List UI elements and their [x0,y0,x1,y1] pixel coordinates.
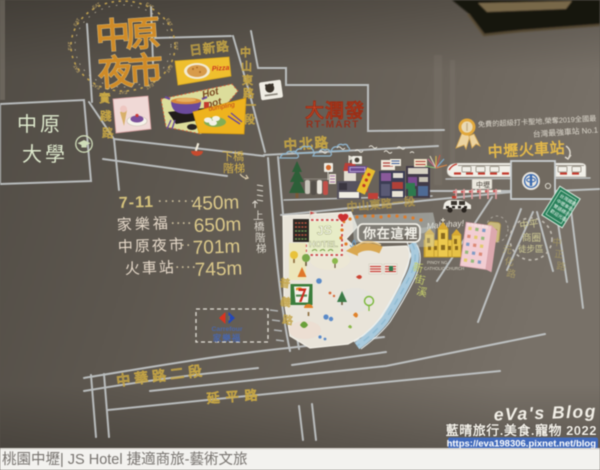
svg-text:中: 中 [552,236,563,249]
svg-text:･････: ･････ [169,262,197,274]
svg-text:段: 段 [244,112,255,126]
svg-text:正: 正 [554,249,565,261]
svg-text:階梯: 階梯 [223,161,245,175]
svg-text:路: 路 [556,260,567,273]
svg-text:中壢: 中壢 [476,180,490,189]
svg-text:家樂福: 家樂福 [117,215,172,234]
svg-text:中: 中 [240,46,251,59]
svg-text:梯: 梯 [256,242,267,255]
svg-text:踐: 踐 [100,109,112,123]
svg-text:夜市: 夜市 [96,50,164,93]
svg-text:山: 山 [241,60,252,73]
svg-text:RT-MART: RT-MART [306,120,359,131]
svg-text:Pizza: Pizza [212,65,230,73]
svg-text:･･････: ･･････ [157,196,196,208]
svg-text:藍晴旅行.美食.寵物 2022: 藍晴旅行.美食.寵物 2022 [446,423,597,438]
svg-text:･･: ･･ [180,240,191,252]
svg-text:東: 東 [242,74,253,87]
svg-text:745m: 745m [194,258,242,281]
svg-text:路: 路 [243,87,254,100]
svg-text:商圈: 商圈 [522,232,541,244]
svg-text:中原: 中原 [17,113,63,136]
svg-text:一: 一 [245,100,256,112]
svg-text:徒步區: 徒步區 [518,244,544,254]
svg-text:你在這裡: 你在這裡 [362,226,418,241]
svg-text:https://eva198306.pixnet.net/b: https://eva198306.pixnet.net/blog [447,439,597,450]
svg-text:7-11: 7-11 [119,194,155,212]
svg-text:Carrefour: Carrefour [212,326,243,333]
svg-text:大學: 大學 [22,143,68,166]
svg-text:450m: 450m [191,192,239,215]
svg-text:普: 普 [279,276,291,290]
svg-text:實: 實 [99,91,111,105]
svg-text:家樂福: 家樂福 [213,333,242,343]
svg-text:650m: 650m [193,214,241,237]
svg-text:EAT: EAT [67,42,72,51]
svg-text:下橋: 下橋 [222,149,244,163]
svg-text:CATHOLIC CHURCH: CATHOLIC CHURCH [424,266,464,271]
svg-text:PINOY NG: PINOY NG [427,260,447,265]
svg-text:路: 路 [102,126,114,140]
svg-text:HOTEL: HOTEL [309,239,338,249]
svg-text:eVa's Blog: eVa's Blog [493,401,597,425]
svg-text:JS: JS [316,223,332,238]
svg-text:桃園中壢| JS Hotel 捷適商旅-藝術文旅: 桃園中壢| JS Hotel 捷適商旅-藝術文旅 [2,450,247,468]
svg-text:701m: 701m [192,236,240,259]
svg-text:中原夜市: 中原夜市 [118,237,187,256]
svg-text:････: ････ [170,218,192,230]
svg-text:EAT: EAT [174,42,179,51]
